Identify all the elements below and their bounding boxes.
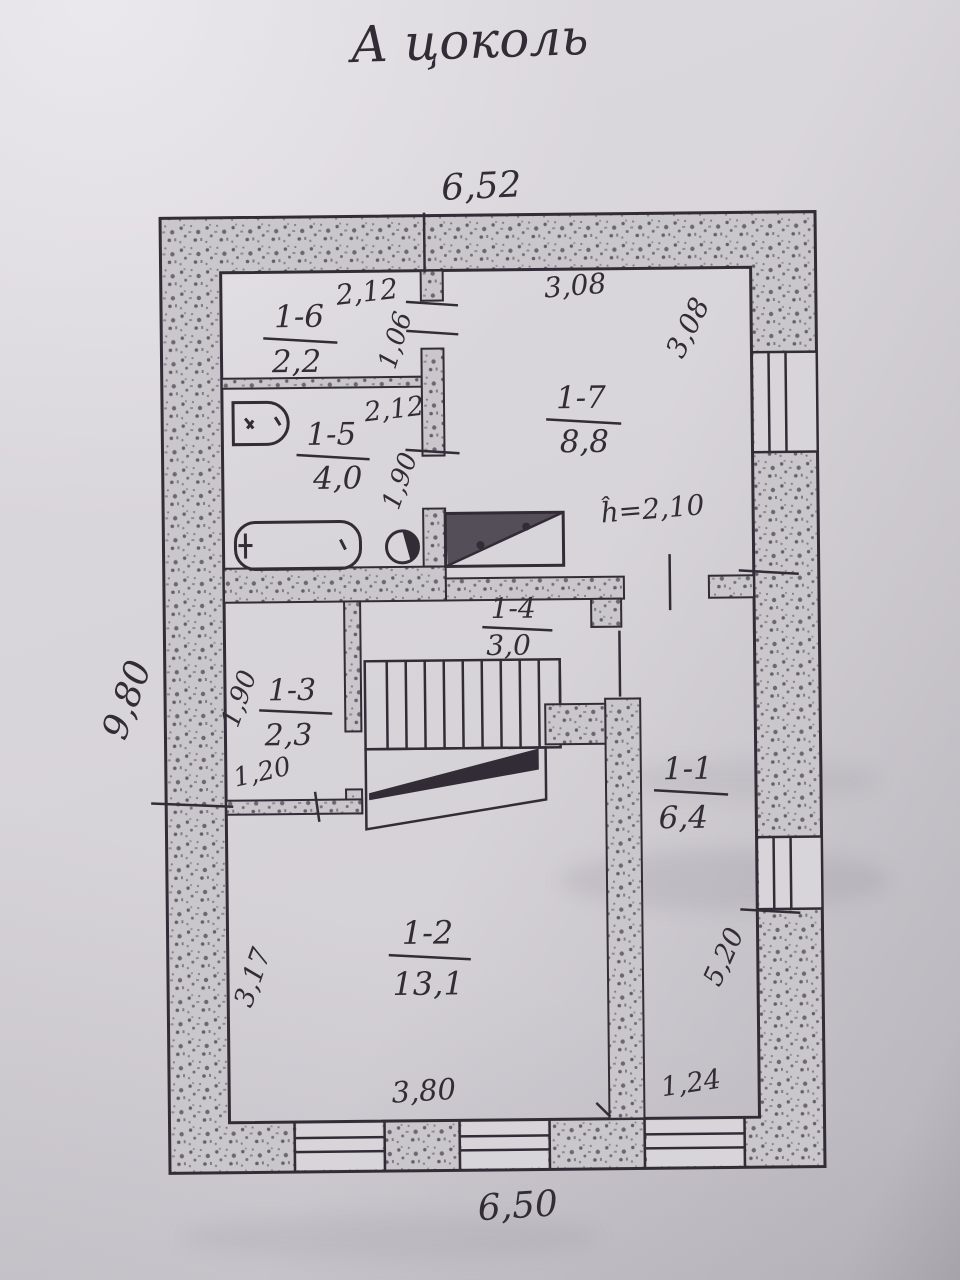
room-id: 1-7 — [556, 380, 607, 417]
room-label-1-3: 1-3 2,3 — [259, 673, 333, 754]
room-id: 1-5 — [306, 416, 356, 453]
page-title: А цоколь — [347, 8, 590, 74]
dim-room17-height: 3,08 — [659, 292, 716, 363]
dim-bottom-width: 6,50 — [477, 1183, 560, 1229]
room-area: 2,3 — [263, 718, 312, 754]
room-area: 13,1 — [392, 964, 464, 1003]
room-label-1-6: 1-6 2,2 — [263, 299, 338, 381]
plan-body: 1-6 2,2 1-5 4,0 1-7 8,8 1-4 3,0 1-3 — [89, 161, 826, 1233]
wall-middle-horizontal — [224, 563, 755, 631]
window-symbol-bottom-center — [460, 1119, 551, 1170]
bathtub-symbol — [235, 521, 360, 569]
room-id: 1-3 — [268, 673, 317, 709]
dim-left-height: 9,80 — [95, 655, 160, 744]
dim-room15-width: 2,12 — [362, 391, 426, 429]
dim-room11-height: 5,20 — [698, 923, 751, 991]
dim-room15-height: 1,90 — [377, 449, 425, 514]
window-symbol-bottom-right — [644, 1117, 745, 1168]
dim-room12-width: 3,80 — [390, 1072, 457, 1110]
dim-room17-width: 3,08 — [543, 267, 608, 305]
wall-1-6-1-5 — [222, 377, 422, 389]
room-id: 1-4 — [490, 592, 535, 625]
room-label-1-7: 1-7 8,8 — [546, 380, 622, 461]
room-label-1-1: 1-1 6,4 — [654, 751, 729, 837]
dim-room11-width: 1,24 — [659, 1064, 723, 1104]
room-area: 2,2 — [271, 344, 322, 381]
scanned-floor-plan-page: А цоколь — [0, 0, 960, 1280]
window-symbol-right-upper — [751, 352, 817, 453]
room-label-1-2: 1-2 13,1 — [388, 913, 471, 1003]
room-id: 1-6 — [274, 299, 324, 336]
dim-room16-width: 2,12 — [333, 272, 400, 312]
room-label-1-4: 1-4 3,0 — [482, 591, 553, 662]
dim-top-width: 6,52 — [440, 164, 522, 209]
room-area: 6,4 — [659, 800, 709, 837]
room-area: 8,8 — [560, 424, 610, 461]
washbasin-symbol — [386, 531, 419, 563]
room-id: 1-1 — [663, 751, 713, 788]
ceiling-height-note: ĥ=2,10 — [599, 488, 705, 529]
outer-wall — [160, 212, 825, 1174]
stairs — [365, 659, 607, 830]
dim-room13-width: 1,20 — [231, 752, 294, 794]
dim-room12-height: 3,17 — [228, 943, 277, 1011]
window-symbol-right-lower — [757, 837, 823, 910]
room-label-1-5: 1-5 4,0 — [296, 416, 370, 497]
room-id: 1-2 — [402, 913, 454, 952]
room-area: 4,0 — [312, 460, 363, 497]
stair-flight-above — [445, 512, 564, 566]
sink-symbol — [233, 402, 288, 445]
wall-corridor-vertical — [604, 630, 644, 1118]
room-area: 3,0 — [486, 629, 531, 662]
dim-room16-height: 1,06 — [373, 308, 419, 372]
window-symbol-bottom-left — [295, 1121, 386, 1172]
floor-plan-drawing: А цоколь — [0, 0, 960, 1280]
